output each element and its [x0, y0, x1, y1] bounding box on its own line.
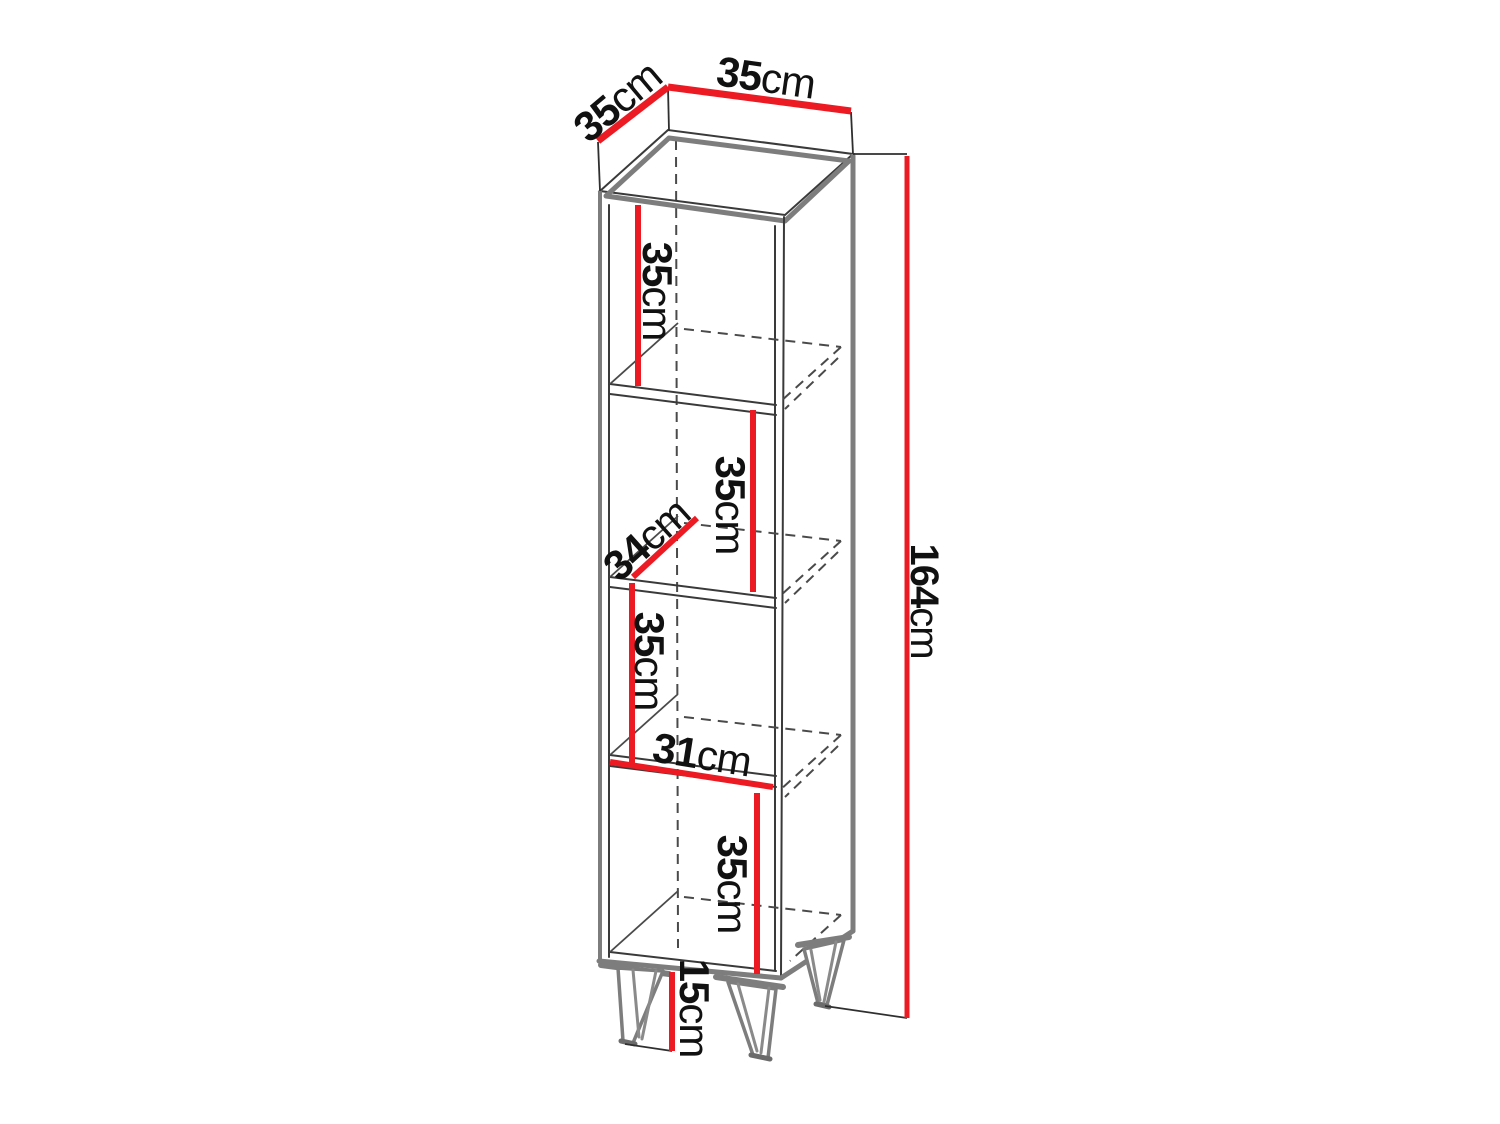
label-compartment-1: 35cm	[635, 242, 682, 341]
label-compartment-4: 35cm	[710, 835, 757, 934]
shelf-1-hidden-right-lower	[785, 358, 838, 409]
bottom-hidden-back	[684, 897, 841, 915]
shelf-1-front-top	[610, 384, 776, 405]
top-face-panel-edge	[606, 138, 849, 221]
ext-leg-bottom	[625, 1044, 672, 1051]
label-compartment-2: 35cm	[708, 456, 755, 555]
shelf-3-hidden-right-lower	[785, 746, 838, 797]
ext-top-left	[598, 142, 600, 191]
shelf-3-hidden-right	[780, 735, 841, 790]
label-total-height: 164cm	[902, 543, 946, 658]
label-inner-width: 31cm	[650, 723, 755, 785]
shelf-2-hidden-right	[780, 541, 841, 596]
label-compartment-3: 35cm	[627, 612, 674, 711]
front-left-leg	[601, 965, 669, 1044]
back-right-leg	[798, 937, 849, 1007]
shelf-2-hidden-right-lower	[785, 552, 838, 603]
shelf-1-hidden-right	[780, 347, 841, 402]
diagram-canvas: 35cm 35cm 164cm 35cm 35cm 34cm 35cm 31cm…	[0, 0, 1500, 1124]
bottom-left-edge	[610, 891, 678, 952]
ext-top-back	[668, 88, 669, 131]
label-leg-height: 15cm	[672, 959, 719, 1058]
furniture-dimension-drawing: 35cm 35cm 164cm 35cm 35cm 34cm 35cm 31cm…	[0, 0, 1500, 1124]
ext-top-right	[851, 112, 853, 154]
front-right-leg	[716, 977, 783, 1059]
front-right-edge	[781, 217, 784, 977]
ext-height-bottom	[825, 1006, 907, 1018]
shelf-1-hidden-back	[684, 329, 841, 347]
